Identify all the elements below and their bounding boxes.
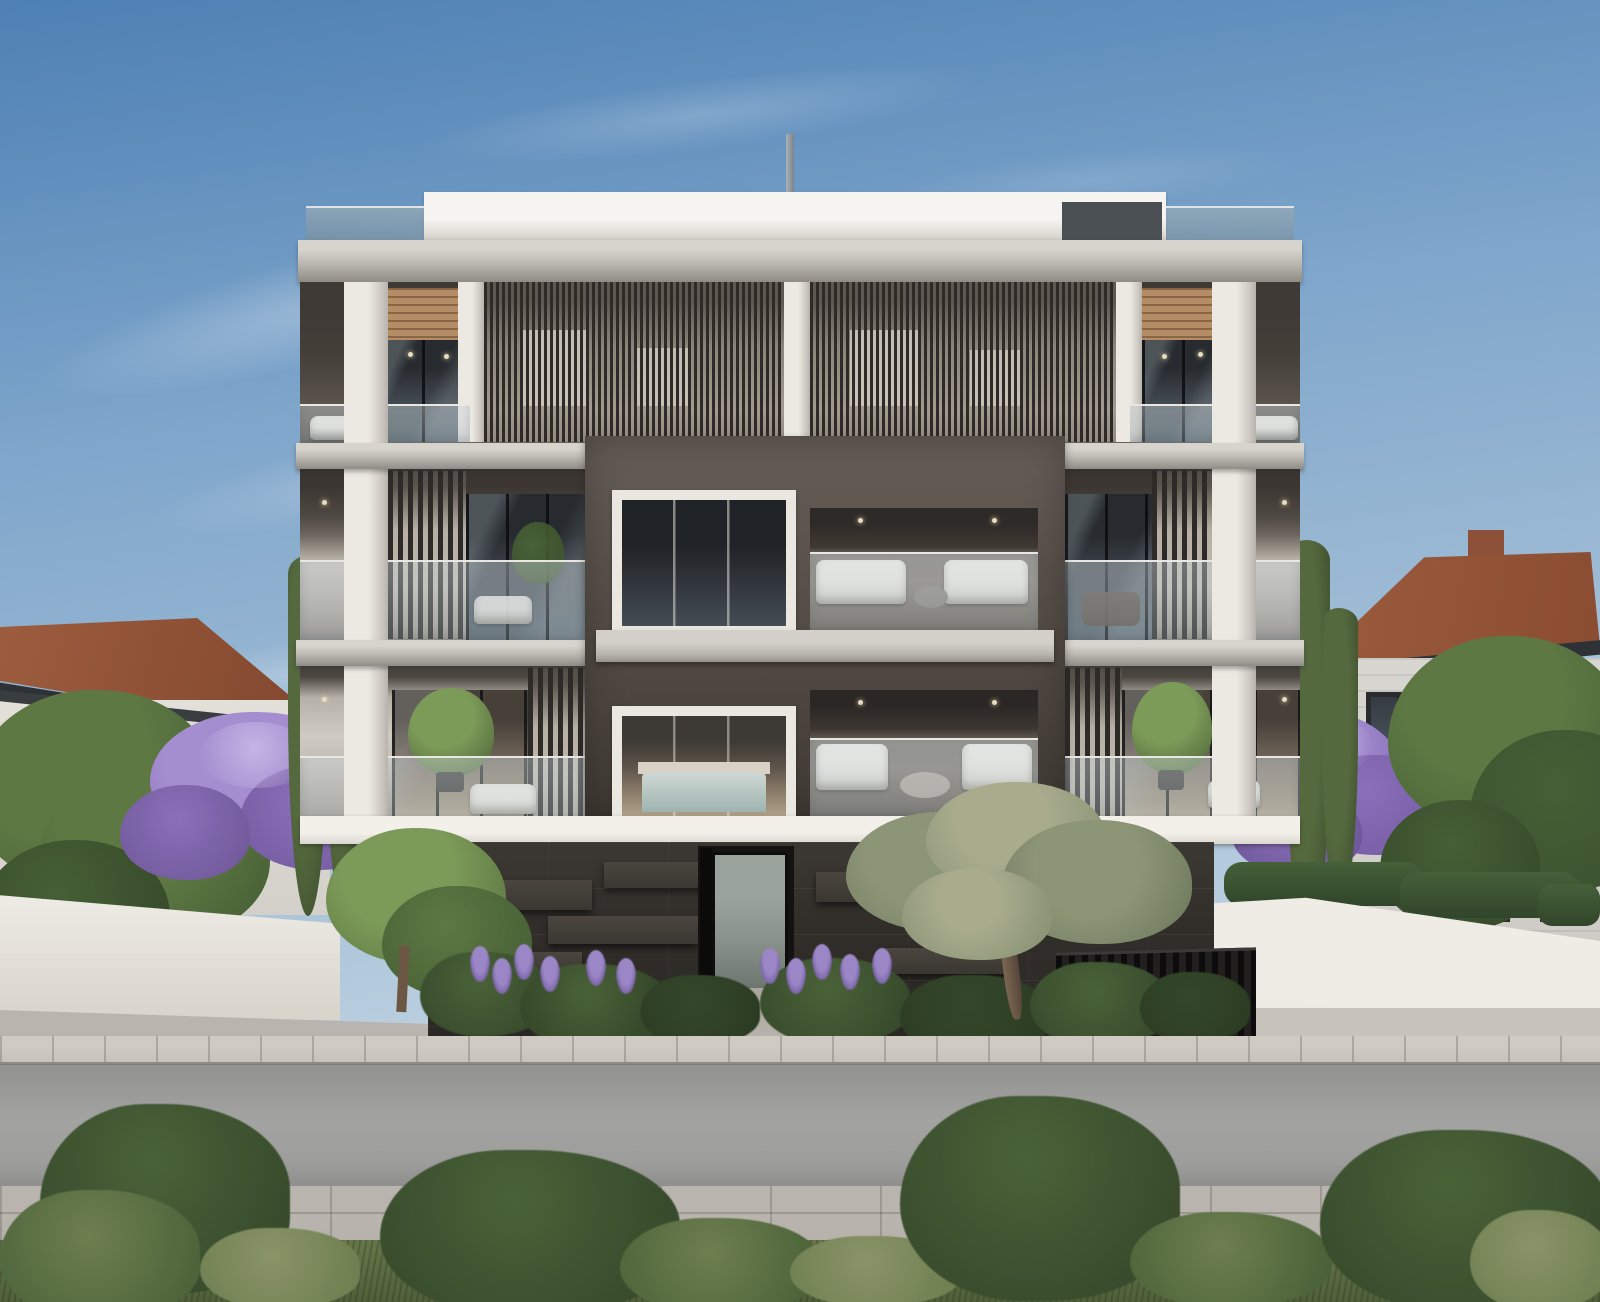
hedge [1538, 884, 1600, 926]
downlight [1162, 354, 1167, 359]
near-sidewalk [0, 1036, 1600, 1064]
garden-bush [1140, 972, 1250, 1042]
lavender [514, 944, 534, 980]
lavender [812, 944, 832, 980]
interior-wall-patch [634, 348, 688, 406]
downlight [992, 700, 997, 705]
downlight [992, 518, 997, 523]
timber-soffit [382, 288, 458, 340]
corner-column [344, 282, 388, 816]
lavender [760, 948, 780, 984]
interior-wall-patch [970, 350, 1022, 406]
foreground-shrub [620, 1218, 820, 1302]
lavender [540, 956, 560, 992]
garden-bush [640, 975, 760, 1045]
roof-glass-railing [1166, 206, 1294, 244]
olive-tree-canopy [902, 868, 1052, 960]
bedroom-window-glass [622, 716, 786, 818]
jacaranda-tree [120, 785, 250, 880]
balcony-glass-balustrade [810, 552, 1038, 634]
corner-column [1212, 282, 1256, 816]
roof-glass-railing [306, 206, 424, 244]
balcony-glass-balustrade [1065, 560, 1300, 642]
lavender [470, 946, 490, 982]
roof-parapet [424, 192, 1166, 242]
downlight [1198, 352, 1203, 357]
lavender [492, 958, 512, 994]
interior-wall-patch [850, 330, 920, 406]
foreground-shrub [0, 1190, 200, 1302]
foreground-shrub [1470, 1210, 1600, 1302]
timber-soffit [1142, 288, 1218, 340]
downlight [1282, 500, 1287, 505]
lavender [616, 958, 636, 994]
bed [642, 772, 766, 812]
interior-wall-patch [520, 330, 586, 406]
roof-stair-glass [1062, 202, 1162, 242]
downlight [858, 518, 863, 523]
scene-architectural-render [0, 0, 1600, 1302]
roof-slab [298, 240, 1302, 282]
lavender [872, 948, 892, 984]
downlight [322, 500, 327, 505]
frame-internal-slab [596, 630, 1054, 662]
stone-panel [548, 916, 698, 944]
lavender [786, 958, 806, 994]
downlight [858, 700, 863, 705]
lavender [840, 954, 860, 990]
louver-screen-bay [484, 282, 784, 442]
lavender [586, 950, 606, 986]
foreground-shrub [1130, 1212, 1330, 1302]
downlight [444, 354, 449, 359]
downlight [1282, 697, 1287, 702]
foreground-shrub [200, 1228, 360, 1302]
downlight [322, 697, 327, 702]
right-house-chimney [1468, 530, 1504, 556]
bedroom-window-glass [622, 500, 786, 626]
balcony-glass-balustrade [300, 560, 585, 642]
louver-frame-pier [784, 282, 810, 442]
hedge [1224, 862, 1424, 906]
downlight [408, 352, 413, 357]
louver-screen-bay [810, 282, 1116, 442]
